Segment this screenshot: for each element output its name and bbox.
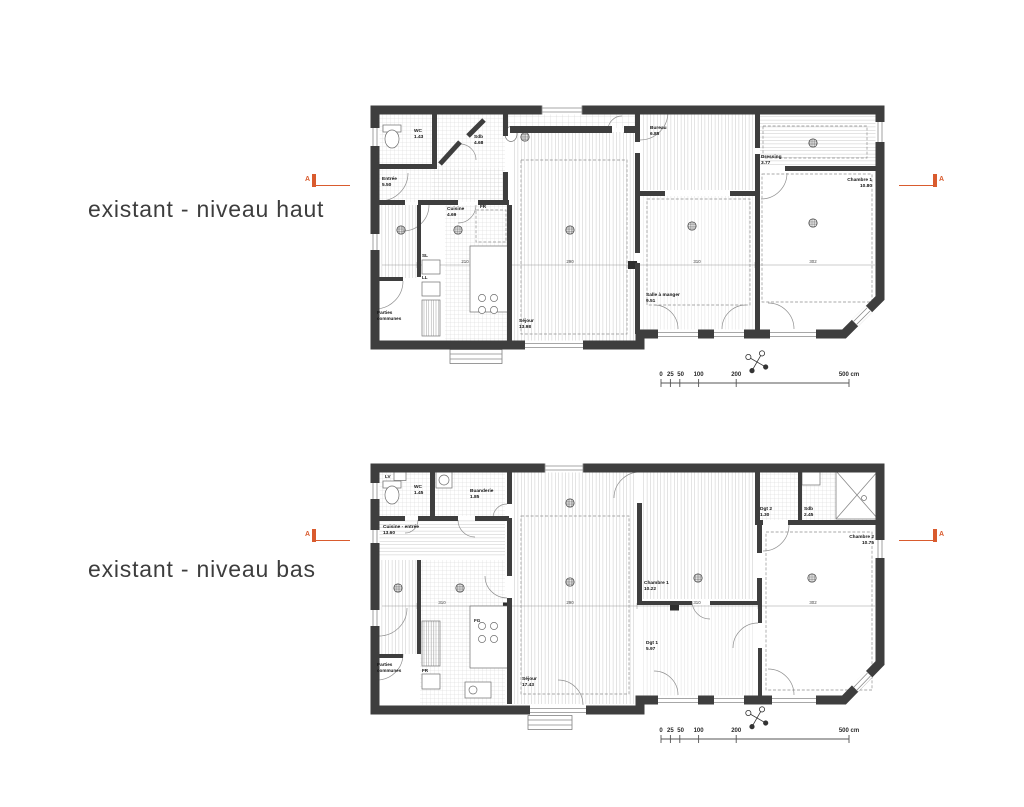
ceiling-symbol-icon <box>688 222 696 230</box>
room-label-sdb: Sdb <box>474 134 483 140</box>
room-label-dressing: Dressing <box>761 154 782 160</box>
floor-plan-upper-level: 210 290 310 302 <box>370 98 885 376</box>
section-marker-lower-left: A <box>303 527 350 542</box>
dim-label: 302 <box>809 259 817 264</box>
room-label-cuisine-entree: Cuisine - entrée <box>383 524 419 530</box>
plan-title-lower-level: existant - niveau bas <box>88 556 316 583</box>
room-area-sdb: 2.45 <box>804 512 814 518</box>
section-marker-label: A <box>939 176 944 183</box>
section-marker-upper-right: A <box>899 172 946 187</box>
room-label-salle-a-manger: Salle à manger <box>646 292 680 298</box>
annotation-common-areas: Parties <box>377 662 393 667</box>
section-cut-line-icon <box>899 540 933 542</box>
ceiling-symbol-icon <box>808 574 816 582</box>
room-area-salle-a-manger: 9.51 <box>646 298 656 304</box>
stairs <box>422 300 440 336</box>
graphic-scale: 0 25 50 100 200 500 cm <box>659 372 859 387</box>
scale-tick: 100 <box>694 372 705 378</box>
fridge-icon <box>422 674 440 689</box>
scale-tick: 100 <box>694 728 705 734</box>
washer-icon <box>422 282 440 296</box>
ceiling-symbol-icon <box>397 226 405 234</box>
plan-title-upper-level: existant - niveau haut <box>88 196 324 223</box>
scale-bar-upper: 0 25 50 100 200 500 cm <box>653 346 868 394</box>
scale-tick: 200 <box>731 372 742 378</box>
scale-tick: 50 <box>677 372 684 378</box>
section-marker-label: A <box>305 531 310 538</box>
annotation-dishwasher: LV <box>385 474 391 479</box>
toilet-icon <box>385 486 399 504</box>
room-label-sejour: Séjour <box>519 318 534 324</box>
burner-icon <box>478 306 485 313</box>
room-label-chambre1: Chambre 1 <box>644 580 669 586</box>
room-area-sdb: 4.68 <box>474 140 484 146</box>
annotation-common-areas: communes <box>377 316 402 321</box>
annotation-washer: LL <box>422 275 428 280</box>
dim-label: 310 <box>438 600 446 605</box>
dim-label: 302 <box>809 600 817 605</box>
architectural-drawing-sheet: existant - niveau haut A A <box>0 0 1024 807</box>
annotation-common-areas: communes <box>377 668 402 673</box>
ceiling-symbol-icon <box>454 226 462 234</box>
section-cut-bar-icon <box>933 529 937 542</box>
burner-icon <box>478 622 485 629</box>
section-marker-upper-left: A <box>303 172 350 187</box>
entry-steps <box>450 350 502 364</box>
ceiling-symbol-icon <box>694 574 702 582</box>
room-area-wc: 1.45 <box>414 490 424 496</box>
dim-label: 290 <box>566 600 574 605</box>
annotation-dryer: SL <box>422 253 428 258</box>
scale-tick: 25 <box>667 372 674 378</box>
north-indicator-icon <box>740 346 774 379</box>
ceiling-symbol-icon <box>394 584 402 592</box>
toilet-icon <box>385 130 399 148</box>
room-label-dgt1: Dgt 1 <box>646 640 658 646</box>
dryer-icon <box>422 260 440 274</box>
scale-tick: 0 <box>659 728 663 734</box>
room-label-cuisine: Cuisine <box>447 206 465 212</box>
burner-icon <box>478 635 485 642</box>
room-label-entree: Entrée <box>382 176 397 182</box>
room-area-chambre2: 10.75 <box>862 540 874 546</box>
annotation-stove: FG <box>474 618 481 623</box>
room-label-bureau: Bureau <box>650 125 667 131</box>
north-indicator-icon <box>740 702 774 735</box>
dim-label: 210 <box>461 259 469 264</box>
annotation-fridge: FR <box>480 204 487 209</box>
scale-tick: 500 cm <box>839 372 859 378</box>
dim-label: 290 <box>566 259 574 264</box>
ceiling-symbol-icon <box>566 499 574 507</box>
ceiling-symbol-icon <box>456 584 464 592</box>
annotation-fridge: FR <box>422 668 429 673</box>
ceiling-symbol-icon <box>809 139 817 147</box>
burner-icon <box>490 622 497 629</box>
burner-icon <box>478 294 485 301</box>
section-cut-line-icon <box>316 540 350 542</box>
section-cut-bar-icon <box>933 174 937 187</box>
room-area-entree: 5.50 <box>382 182 392 188</box>
stairs <box>422 621 440 666</box>
burner-icon <box>490 306 497 313</box>
room-area-cuisine-entree: 13.60 <box>383 530 395 536</box>
room-area-buanderie: 1.85 <box>470 494 480 500</box>
dim-label: 310 <box>693 600 701 605</box>
annotation-common-areas: Parties <box>377 310 393 315</box>
section-marker-lower-right: A <box>899 527 946 542</box>
room-area-dgt2: 1.30 <box>760 512 770 518</box>
dim-label: 310 <box>693 259 701 264</box>
scale-tick: 50 <box>677 728 684 734</box>
room-area-chambre1: 10.80 <box>860 183 872 189</box>
room-area-dgt1: 5.97 <box>646 646 656 652</box>
room-label-wc: WC <box>414 484 423 490</box>
burner-icon <box>490 635 497 642</box>
room-area-bureau: 6.85 <box>650 131 660 137</box>
room-area-chambre1: 10.22 <box>644 586 656 592</box>
room-area-sejour: 17.43 <box>522 682 534 688</box>
scale-tick: 25 <box>667 728 674 734</box>
section-cut-line-icon <box>899 185 933 187</box>
kitchen-counter <box>470 246 508 312</box>
water-heater-icon <box>521 133 529 141</box>
room-area-sejour: 13.98 <box>519 324 531 330</box>
room-label-buanderie: Buanderie <box>470 488 494 494</box>
scale-tick: 0 <box>659 372 663 378</box>
section-cut-line-icon <box>316 185 350 187</box>
ceiling-symbol-icon <box>809 219 817 227</box>
room-label-wc: WC <box>414 128 423 134</box>
room-area-dressing: 3.77 <box>761 160 771 166</box>
room-label-sejour: Séjour <box>522 676 537 682</box>
room-area-wc: 1.43 <box>414 134 424 140</box>
room-label-chambre2: Chambre 2 <box>849 534 874 540</box>
ceiling-symbol-icon <box>566 578 574 586</box>
room-label-dgt2: Dgt 2 <box>760 506 772 512</box>
entry-steps <box>528 716 572 730</box>
room-label-sdb: Sdb <box>804 506 813 512</box>
burner-icon <box>490 294 497 301</box>
kitchen-counter <box>470 606 508 668</box>
section-marker-label: A <box>939 531 944 538</box>
ceiling-symbol-icon <box>566 226 574 234</box>
scale-bar-lower: 0 25 50 100 200 500 cm <box>653 702 868 750</box>
graphic-scale: 0 25 50 100 200 500 cm <box>659 728 859 743</box>
section-marker-label: A <box>305 176 310 183</box>
scale-tick: 200 <box>731 728 742 734</box>
room-label-chambre1: Chambre 1 <box>847 177 872 183</box>
room-area-cuisine: 4.69 <box>447 212 457 218</box>
scale-tick: 500 cm <box>839 728 859 734</box>
sink-icon <box>802 472 820 485</box>
